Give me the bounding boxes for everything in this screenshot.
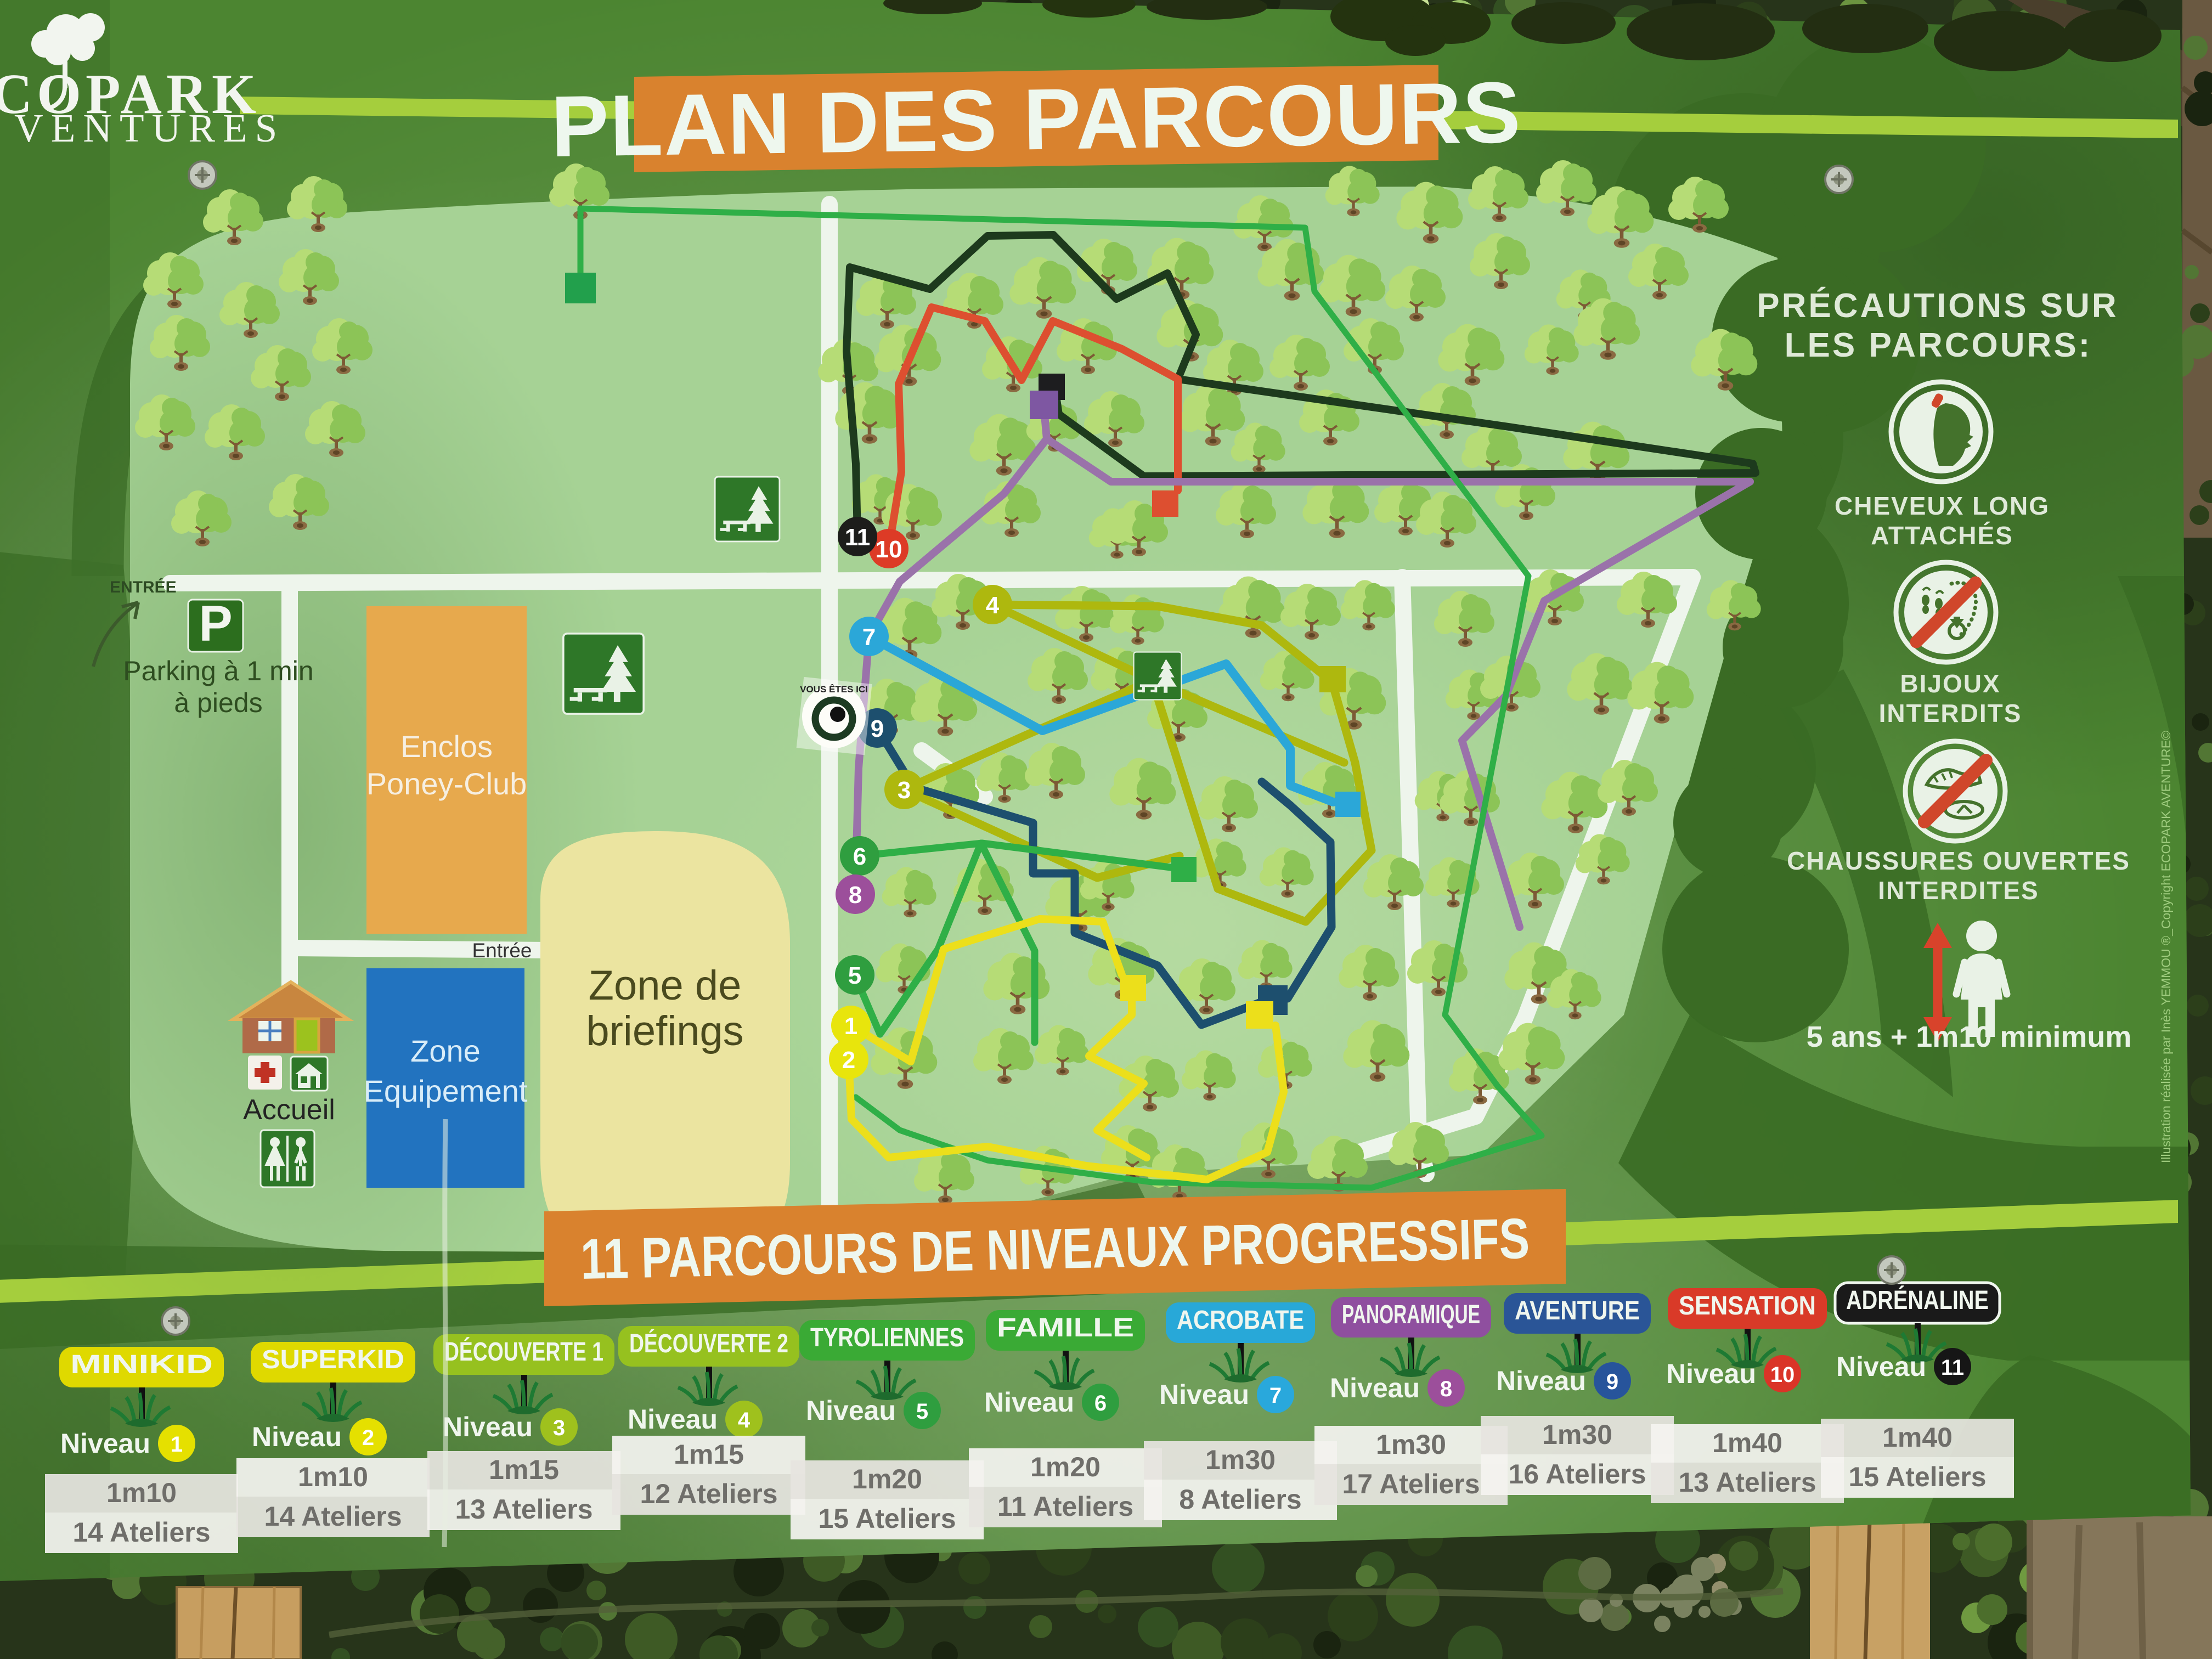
svg-text:P: P — [199, 596, 232, 652]
svg-text:LES PARCOURS:: LES PARCOURS: — [1785, 326, 2092, 364]
svg-text:Zone: Zone — [410, 1034, 481, 1068]
svg-text:7: 7 — [1269, 1384, 1282, 1408]
svg-text:AVENTURE: AVENTURE — [1515, 1296, 1640, 1325]
svg-text:6: 6 — [1094, 1391, 1107, 1415]
svg-text:13 Ateliers: 13 Ateliers — [455, 1494, 592, 1525]
svg-text:1m30: 1m30 — [1205, 1444, 1276, 1475]
svg-text:14 Ateliers: 14 Ateliers — [72, 1517, 210, 1548]
svg-text:ATTACHÉS: ATTACHÉS — [1871, 521, 2013, 550]
svg-text:ADRÉNALINE: ADRÉNALINE — [1846, 1285, 1989, 1315]
svg-text:BIJOUX: BIJOUX — [1900, 669, 2000, 698]
svg-text:1m15: 1m15 — [489, 1454, 559, 1485]
svg-text:Niveau: Niveau — [628, 1404, 718, 1435]
svg-text:16 Ateliers: 16 Ateliers — [1508, 1459, 1646, 1489]
svg-text:1m30: 1m30 — [1542, 1419, 1612, 1450]
svg-text:Accueil: Accueil — [243, 1094, 335, 1126]
svg-text:1m30: 1m30 — [1376, 1429, 1446, 1460]
svg-text:INTERDITES: INTERDITES — [1878, 876, 2039, 905]
svg-text:1: 1 — [844, 1013, 857, 1040]
svg-text:1m40: 1m40 — [1712, 1427, 1782, 1458]
svg-text:SUPERKID: SUPERKID — [262, 1345, 404, 1374]
svg-text:INTERDITS: INTERDITS — [1879, 699, 2022, 727]
svg-text:TYROLIENNES: TYROLIENNES — [810, 1323, 964, 1352]
svg-text:8: 8 — [849, 882, 862, 909]
svg-text:17 Ateliers: 17 Ateliers — [1342, 1469, 1480, 1499]
svg-text:2: 2 — [362, 1426, 374, 1450]
svg-text:SENSATION: SENSATION — [1679, 1291, 1816, 1321]
svg-text:DÉCOUVERTE 1: DÉCOUVERTE 1 — [444, 1337, 603, 1367]
svg-text:Niveau: Niveau — [252, 1421, 342, 1452]
svg-text:Niveau: Niveau — [1496, 1365, 1586, 1396]
svg-text:11 Ateliers: 11 Ateliers — [997, 1491, 1133, 1522]
svg-text:Niveau: Niveau — [806, 1395, 896, 1426]
svg-text:FAMILLE: FAMILLE — [997, 1313, 1134, 1342]
svg-text:Poney-Club: Poney-Club — [366, 766, 527, 801]
svg-text:à pieds: à pieds — [174, 687, 262, 718]
svg-text:5 ans + 1m10 minimum: 5 ans + 1m10 minimum — [1807, 1020, 2132, 1053]
svg-text:Niveau: Niveau — [443, 1412, 533, 1442]
svg-text:14 Ateliers: 14 Ateliers — [264, 1501, 402, 1532]
svg-text:Enclos: Enclos — [400, 729, 493, 764]
svg-text:Niveau: Niveau — [1836, 1351, 1926, 1382]
svg-text:1m10: 1m10 — [106, 1477, 177, 1508]
svg-text:6: 6 — [853, 843, 866, 870]
svg-text:CHAUSSURES OUVERTES: CHAUSSURES OUVERTES — [1787, 847, 2130, 875]
svg-text:3: 3 — [553, 1416, 565, 1440]
svg-text:Zone de: Zone de — [589, 962, 742, 1009]
svg-text:4: 4 — [986, 592, 1000, 619]
svg-text:1m15: 1m15 — [674, 1439, 744, 1470]
svg-text:1: 1 — [171, 1432, 183, 1457]
svg-text:VOUS ÊTES ICI: VOUS ÊTES ICI — [800, 684, 868, 695]
svg-text:15 Ateliers: 15 Ateliers — [818, 1503, 956, 1534]
svg-text:1m40: 1m40 — [1882, 1422, 1953, 1453]
svg-text:Niveau: Niveau — [1330, 1373, 1420, 1403]
svg-text:1m20: 1m20 — [1030, 1452, 1101, 1482]
svg-text:Illustration réalisée par Inès: Illustration réalisée par Inès YEMMOU ®_… — [2159, 731, 2173, 1163]
svg-text:11: 11 — [1941, 1356, 1964, 1380]
svg-text:ACROBATE: ACROBATE — [1177, 1306, 1304, 1335]
svg-text:Equipement: Equipement — [364, 1074, 528, 1108]
svg-text:9: 9 — [871, 715, 884, 742]
svg-text:8 Ateliers: 8 Ateliers — [1179, 1484, 1301, 1515]
svg-text:12 Ateliers: 12 Ateliers — [640, 1479, 777, 1509]
svg-text:13 Ateliers: 13 Ateliers — [1678, 1467, 1816, 1498]
svg-text:5: 5 — [916, 1400, 928, 1424]
svg-text:15 Ateliers: 15 Ateliers — [1848, 1462, 1986, 1492]
svg-text:PLAN DES PARCOURS: PLAN DES PARCOURS — [550, 64, 1522, 175]
svg-text:Niveau: Niveau — [1666, 1358, 1756, 1389]
svg-text:11: 11 — [845, 524, 871, 551]
svg-text:Niveau: Niveau — [60, 1428, 150, 1459]
svg-text:MINIKID: MINIKID — [70, 1350, 213, 1379]
svg-text:4: 4 — [738, 1408, 751, 1432]
svg-text:8: 8 — [1440, 1377, 1452, 1401]
svg-text:DÉCOUVERTE 2: DÉCOUVERTE 2 — [629, 1329, 788, 1358]
svg-text:PANORAMIQUE: PANORAMIQUE — [1342, 1300, 1480, 1329]
svg-text:Parking à 1 min: Parking à 1 min — [123, 656, 313, 686]
svg-text:Entrée: Entrée — [472, 939, 532, 962]
svg-text:2: 2 — [842, 1047, 855, 1074]
svg-text:5: 5 — [848, 962, 861, 989]
svg-text:VENTURES: VENTURES — [14, 106, 285, 150]
svg-text:briefings: briefings — [586, 1008, 743, 1054]
svg-text:CHEVEUX LONG: CHEVEUX LONG — [1835, 492, 2050, 520]
svg-text:9: 9 — [1606, 1370, 1618, 1394]
svg-text:3: 3 — [898, 777, 911, 804]
svg-text:PRÉCAUTIONS SUR: PRÉCAUTIONS SUR — [1757, 287, 2118, 325]
svg-text:10: 10 — [876, 536, 902, 563]
svg-text:1m20: 1m20 — [852, 1464, 922, 1494]
svg-text:10: 10 — [1770, 1363, 1795, 1387]
svg-text:ENTRÉE: ENTRÉE — [110, 578, 177, 596]
svg-text:Niveau: Niveau — [1159, 1379, 1249, 1410]
svg-text:1m10: 1m10 — [298, 1462, 368, 1492]
svg-text:7: 7 — [862, 624, 876, 651]
svg-text:Niveau: Niveau — [984, 1387, 1074, 1418]
